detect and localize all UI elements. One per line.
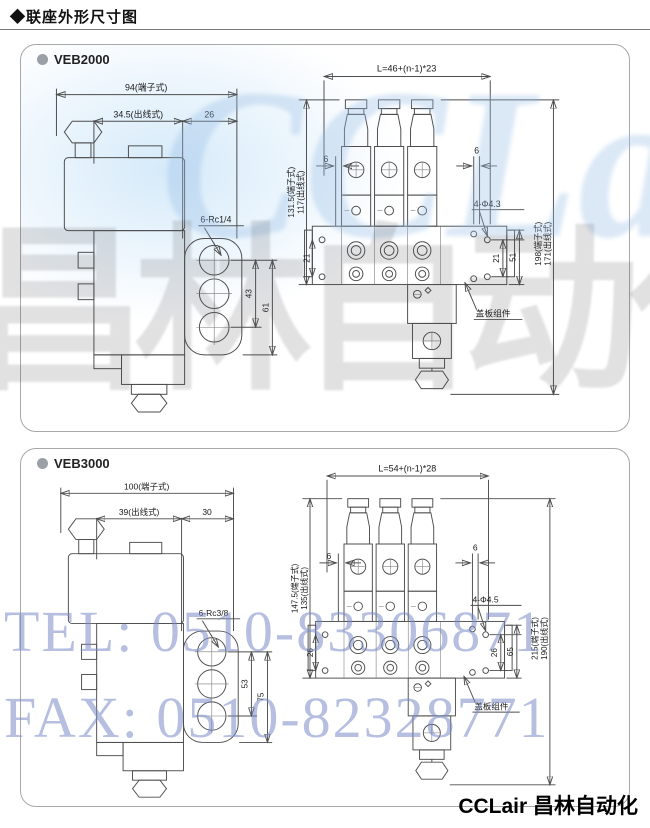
dim-h1: 53: [241, 679, 250, 688]
veb2000-front-view: L=46+(n-1)*23 131.5(端子式) 117(出线式) 198(端子…: [279, 59, 579, 409]
dim-width-terminal: 100(端子式): [124, 482, 169, 492]
catalog-page: ◆联座外形尺寸图 VEB2000 94(端子式) 34.5(出线式) 26: [0, 0, 650, 828]
dim-pitch-right: 6: [474, 145, 479, 155]
veb2000-panel: VEB2000 94(端子式) 34.5(出线式) 26: [20, 44, 630, 432]
plate-label: 盖板组件: [476, 308, 511, 319]
dim-height-cable: 135(出线式): [299, 567, 309, 610]
dim-height-terminal: 131.5(端子式): [286, 166, 296, 217]
dim-width-cable: 34.5(出线式): [113, 108, 163, 119]
page-title: ◆联座外形尺寸图: [10, 6, 138, 27]
dim-pitch-left: 6: [324, 154, 329, 164]
plate-callout: 盖板组件: [465, 283, 522, 320]
side-drawing: [64, 121, 241, 412]
dim-width-terminal: 94(端子式): [125, 82, 167, 93]
dim-hole-right: 65: [506, 647, 515, 656]
dim-width-right: 30: [202, 507, 212, 517]
dim-total-cable: 171(出线式): [543, 221, 553, 265]
dim-width-right: 26: [204, 109, 214, 119]
port-label: 6-Rc3/8: [199, 608, 229, 618]
port-height-dims: 43 61: [231, 260, 277, 355]
veb3000-front-view: L=54+(n-1)*28 147.5(端子式) 135(出线式) 215(端子…: [279, 459, 579, 799]
dim-holes: 4-Φ4.3: [474, 199, 501, 209]
dim-total-terminal: 215(端子式): [530, 617, 540, 660]
plate-label: 盖板组件: [474, 701, 509, 711]
dim-pitch-left: 6: [327, 551, 332, 561]
plate-callout: 盖板组件: [464, 676, 520, 712]
dim-h2: 61: [260, 303, 270, 313]
dim-hole-mid: 26: [490, 648, 499, 657]
dim-hole-left: 21: [302, 253, 311, 263]
dim-width-cable: 39(出线式): [119, 507, 160, 517]
dim-hole-mid: 21: [492, 253, 501, 263]
dim-length: L=46+(n-1)*23: [377, 64, 436, 74]
dim-h2: 75: [257, 692, 266, 701]
veb3000-panel: VEB3000 100(端子式) 39(出线式) 30: [20, 448, 630, 807]
dim-hole-right: 51: [509, 252, 518, 262]
pitch-dims: 6 6: [319, 543, 495, 622]
base-plate: [305, 226, 515, 284]
dim-holes: 4-Φ4.5: [472, 595, 498, 605]
brand-footer: CCLair 昌林自动化: [458, 790, 638, 820]
bottom-valve: [408, 678, 455, 779]
dim-height-cable: 117(出线式): [296, 170, 306, 214]
dim-h1: 43: [244, 289, 254, 299]
height-dims: 147.5(端子式) 135(出线式) 215(端子式) 190(出线式): [290, 499, 556, 785]
dim-length: L=54+(n-1)*28: [378, 463, 436, 473]
side-drawing: [68, 519, 238, 797]
valve-units: [342, 100, 437, 226]
dim-height-terminal: 147.5(端子式): [290, 563, 300, 613]
port-height-dims: 53 75: [228, 652, 272, 743]
pitch-dims: 6 6: [316, 145, 497, 226]
model-bullet-icon: [37, 54, 48, 65]
base-plate: [308, 621, 512, 678]
bottom-valve: [408, 285, 457, 389]
dim-pitch-right: 6: [473, 543, 478, 553]
veb3000-side-view: 100(端子式) 39(出线式) 30: [33, 465, 283, 800]
height-dims: 131.5(端子式) 117(出线式) 198(端子式) 171(出线式): [286, 100, 559, 395]
dim-total-terminal: 198(端子式): [533, 221, 543, 265]
header-rule: [0, 29, 650, 30]
valve-units: [344, 499, 437, 622]
dim-hole-left: 26: [306, 648, 315, 657]
veb2000-side-view: 94(端子式) 34.5(出线式) 26: [33, 65, 283, 415]
port-label: 6-Rc1/4: [200, 215, 231, 225]
dim-total-cable: 190(出线式): [539, 617, 549, 660]
